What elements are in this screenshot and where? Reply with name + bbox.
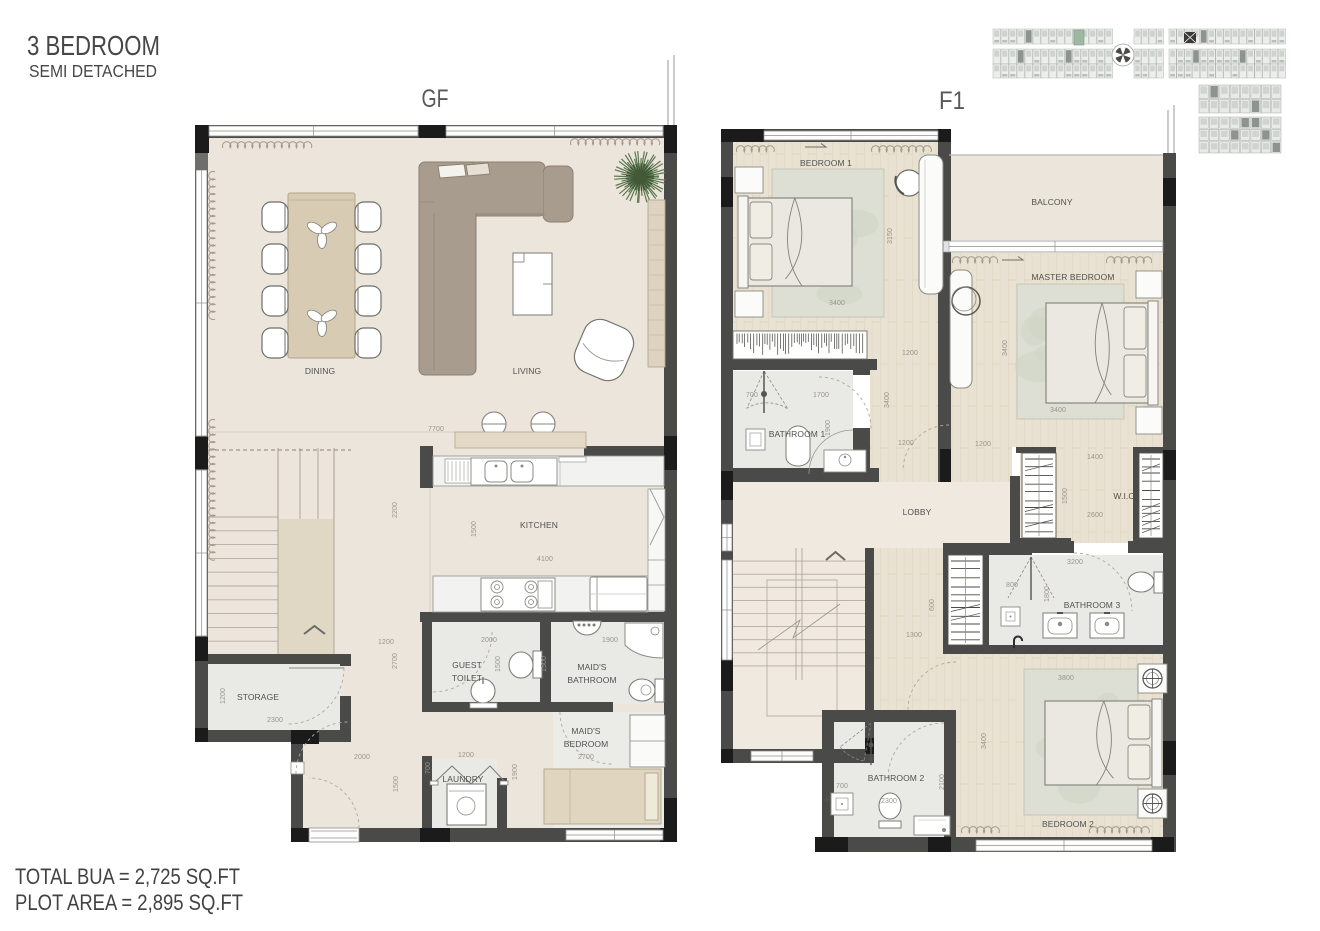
svg-text:1400: 1400 (1087, 454, 1103, 461)
svg-text:MAID'S: MAID'S (571, 726, 600, 736)
svg-text:BATHROOM 1: BATHROOM 1 (769, 429, 826, 439)
svg-text:1900: 1900 (825, 420, 832, 436)
svg-text:BATHROOM 2: BATHROOM 2 (868, 773, 925, 783)
svg-text:3200: 3200 (1067, 559, 1083, 566)
svg-text:BATHROOM: BATHROOM (567, 675, 616, 685)
svg-text:LOBBY: LOBBY (903, 507, 932, 517)
svg-text:BEDROOM: BEDROOM (564, 739, 609, 749)
svg-text:GUEST: GUEST (452, 660, 482, 670)
svg-text:2600: 2600 (1087, 512, 1103, 519)
svg-text:4100: 4100 (537, 556, 553, 563)
svg-text:2700: 2700 (578, 754, 594, 761)
svg-text:1900: 1900 (602, 637, 618, 644)
svg-text:3400: 3400 (829, 300, 845, 307)
svg-text:3400: 3400 (1002, 340, 1009, 356)
svg-text:1900: 1900 (512, 764, 519, 780)
svg-text:3400: 3400 (981, 733, 988, 749)
svg-text:MAID'S: MAID'S (577, 662, 606, 672)
svg-text:W.I.C: W.I.C (1113, 491, 1134, 501)
svg-text:1200: 1200 (902, 350, 918, 357)
svg-text:TOILET: TOILET (452, 673, 482, 683)
svg-text:1200: 1200 (458, 752, 474, 759)
svg-text:2200: 2200 (392, 502, 399, 518)
svg-text:2000: 2000 (354, 754, 370, 761)
svg-text:2100: 2100 (939, 774, 946, 790)
svg-text:SEMI DETACHED: SEMI DETACHED (29, 61, 157, 81)
svg-text:1300: 1300 (906, 632, 922, 639)
svg-text:1800: 1800 (1044, 586, 1051, 602)
svg-text:3150: 3150 (887, 228, 894, 244)
svg-text:1200: 1200 (898, 440, 914, 447)
svg-text:600: 600 (929, 599, 936, 611)
svg-text:2300: 2300 (881, 798, 897, 805)
svg-text:BEDROOM 1: BEDROOM 1 (800, 158, 852, 168)
svg-text:1500: 1500 (471, 521, 478, 537)
svg-text:2000: 2000 (481, 637, 497, 644)
svg-text:BALCONY: BALCONY (1031, 197, 1073, 207)
svg-text:700: 700 (746, 392, 758, 399)
svg-text:F1: F1 (939, 87, 965, 115)
svg-text:TOTAL BUA = 2,725 SQ.FT: TOTAL BUA = 2,725 SQ.FT (15, 864, 240, 889)
svg-text:7700: 7700 (428, 426, 444, 433)
svg-text:1200: 1200 (378, 639, 394, 646)
svg-text:1500: 1500 (495, 656, 502, 672)
svg-text:700: 700 (836, 783, 848, 790)
svg-text:3400: 3400 (884, 392, 891, 408)
svg-text:PLOT AREA = 2,895 SQ.FT: PLOT AREA = 2,895 SQ.FT (15, 890, 243, 915)
svg-text:KITCHEN: KITCHEN (520, 520, 558, 530)
svg-text:1500: 1500 (1062, 488, 1069, 504)
svg-text:2300: 2300 (267, 717, 283, 724)
svg-text:BATHROOM 3: BATHROOM 3 (1064, 600, 1121, 610)
svg-text:MASTER BEDROOM: MASTER BEDROOM (1031, 272, 1114, 282)
svg-text:LAUNDRY: LAUNDRY (442, 774, 483, 784)
svg-text:1200: 1200 (975, 441, 991, 448)
svg-text:3400: 3400 (1050, 407, 1066, 414)
svg-text:DINING: DINING (305, 366, 335, 376)
svg-text:1500: 1500 (541, 656, 548, 672)
svg-text:3 BEDROOM: 3 BEDROOM (27, 30, 160, 61)
svg-text:2700: 2700 (392, 653, 399, 669)
svg-text:GF: GF (422, 85, 449, 113)
svg-text:LIVING: LIVING (513, 366, 541, 376)
svg-text:700: 700 (425, 762, 432, 774)
svg-text:BEDROOM 2: BEDROOM 2 (1042, 819, 1094, 829)
svg-text:STORAGE: STORAGE (237, 692, 279, 702)
svg-text:3800: 3800 (1058, 675, 1074, 682)
svg-text:1200: 1200 (220, 688, 227, 704)
svg-text:800: 800 (1006, 582, 1018, 589)
svg-text:1500: 1500 (393, 776, 400, 792)
svg-text:1700: 1700 (813, 392, 829, 399)
